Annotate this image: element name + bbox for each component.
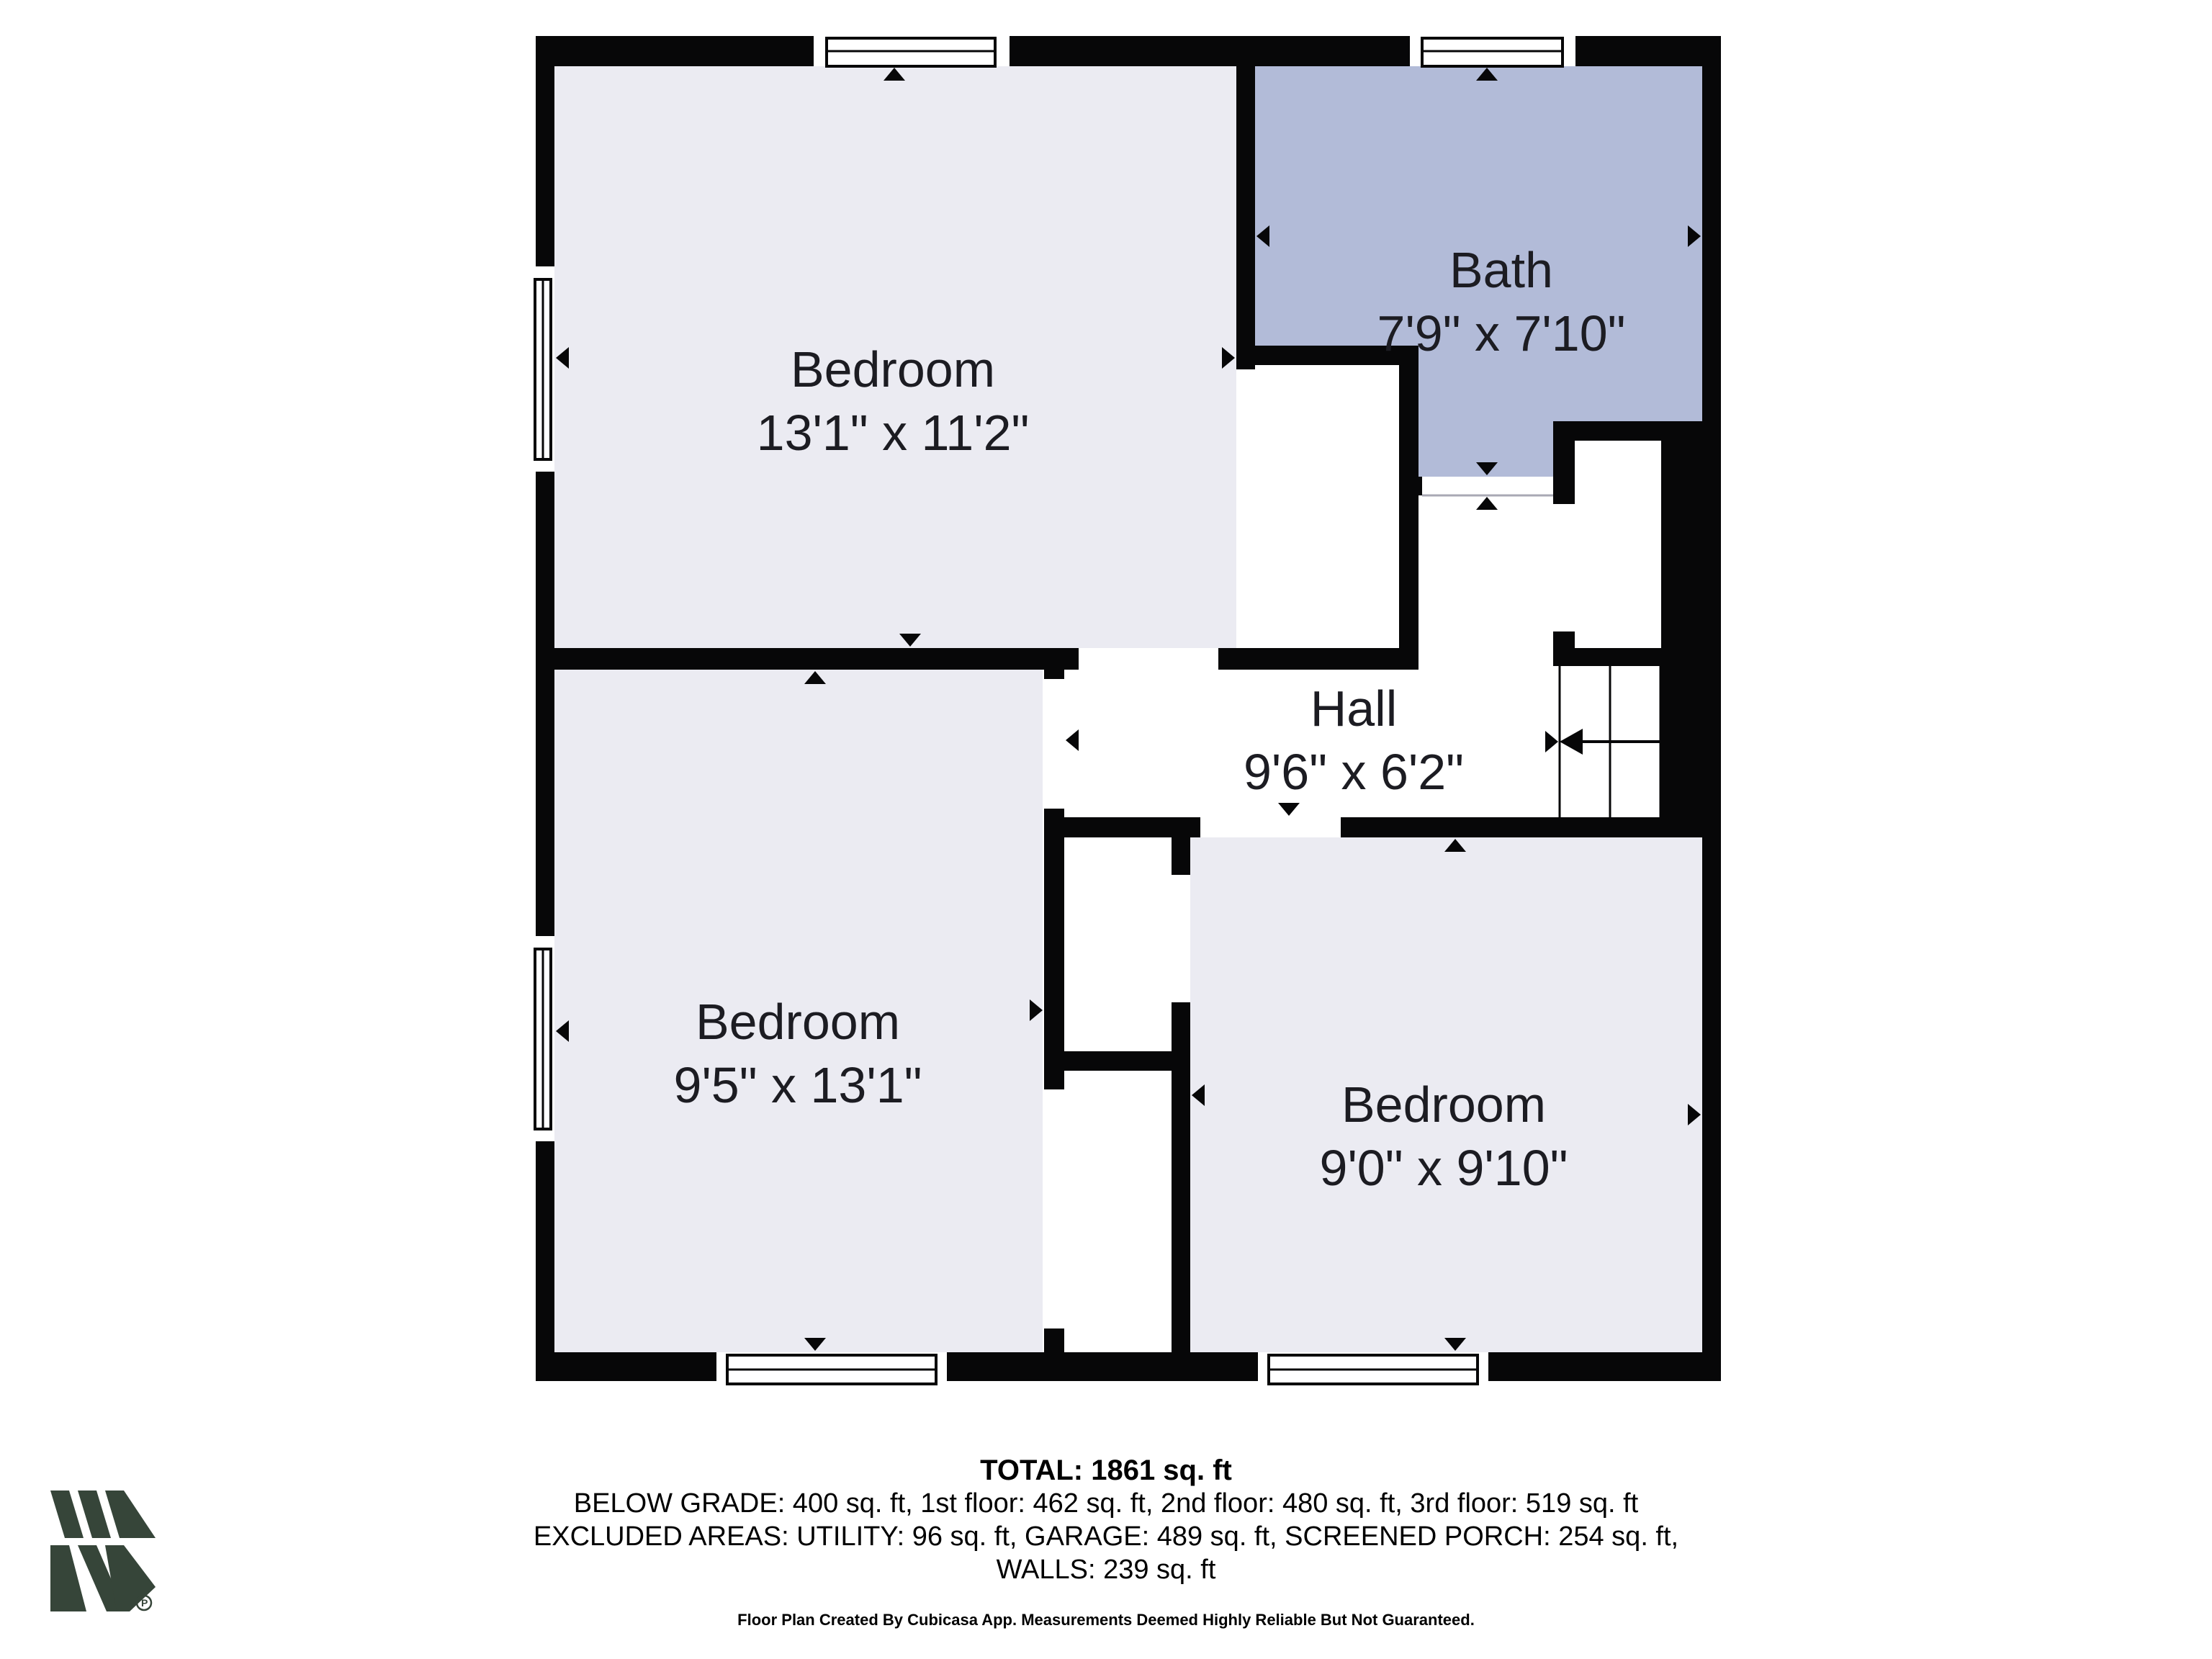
- wall-hall-left-upper: [1044, 648, 1064, 679]
- hall-down-arrow-icon: [1278, 803, 1300, 816]
- wall-outer-bottom: [536, 1352, 1721, 1381]
- bath-label: Bath 7'9" x 7'10": [1377, 238, 1626, 365]
- wall-outer-right: [1702, 36, 1721, 1381]
- mw-logo: P: [50, 1491, 158, 1613]
- bath-dims: 7'9" x 7'10": [1377, 302, 1626, 365]
- wall-bedroom1-right: [1236, 66, 1255, 369]
- landing-up-arrow-icon: [1476, 497, 1498, 510]
- wall-hall-bottom-right: [1341, 817, 1702, 837]
- window-top-left: [814, 36, 1010, 66]
- bedroom-2-dims: 9'5" x 13'1": [674, 1053, 922, 1117]
- bedroom-3-label: Bedroom 9'0" x 9'10": [1320, 1073, 1568, 1200]
- wall-mid-horizontal-right: [1218, 648, 1419, 670]
- wall-closetA-bottom: [1044, 1051, 1190, 1071]
- wall-closetB-right: [1172, 1071, 1190, 1352]
- wall-closet1-right: [1399, 365, 1419, 670]
- wall-right-thick-stair-bay: [1661, 441, 1702, 817]
- bedroom-1-label: Bedroom 13'1" x 11'2": [757, 338, 1030, 464]
- bedroom-2-name: Bedroom: [674, 990, 922, 1053]
- window-left-upper: [535, 266, 554, 472]
- wall-bath-closet-left-stub: [1553, 631, 1575, 648]
- staircase: [1560, 666, 1660, 817]
- wall-hall-left-stub: [1044, 1328, 1064, 1352]
- floor-plan-page: Bedroom 13'1" x 11'2" Bath 7'9" x 7'10" …: [0, 0, 2212, 1659]
- hall-label: Hall 9'6" x 6'2": [1244, 677, 1464, 804]
- wall-closetA-right-upper: [1172, 817, 1190, 875]
- wall-bath-door-stub: [1415, 477, 1422, 495]
- stair-direction-arrow-icon: [1560, 729, 1583, 755]
- bedroom-3-name: Bedroom: [1320, 1073, 1568, 1136]
- bath-name: Bath: [1377, 238, 1626, 302]
- hall-left-arrow-icon: [1066, 729, 1079, 751]
- total-area-text: TOTAL: 1861 sq. ft: [0, 1454, 2212, 1487]
- floor-areas-text: BELOW GRADE: 400 sq. ft, 1st floor: 462 …: [0, 1487, 2212, 1520]
- walls-area-text: WALLS: 239 sq. ft: [0, 1553, 2212, 1586]
- hall-right-arrow-icon: [1545, 731, 1558, 752]
- bedroom-3-dims: 9'0" x 9'10": [1320, 1136, 1568, 1200]
- wall-outer-left: [536, 36, 554, 1381]
- wall-closetA-right-lower: [1172, 1002, 1190, 1051]
- disclaimer-text: Floor Plan Created By Cubicasa App. Meas…: [0, 1611, 2212, 1629]
- bedroom-1-dims: 13'1" x 11'2": [757, 401, 1030, 464]
- logo-trademark-letter: P: [141, 1597, 148, 1609]
- wall-hall-left-lower: [1044, 809, 1064, 1089]
- window-left-lower: [535, 936, 554, 1141]
- hall-name: Hall: [1244, 677, 1464, 740]
- hall-dims: 9'6" x 6'2": [1244, 740, 1464, 804]
- bedroom-2-label: Bedroom 9'5" x 13'1": [674, 990, 922, 1117]
- wall-stair-closet-top: [1553, 421, 1702, 441]
- bedroom-1-name: Bedroom: [757, 338, 1030, 401]
- wall-mid-horizontal-left: [536, 648, 1079, 670]
- excluded-areas-text: EXCLUDED AREAS: UTILITY: 96 sq. ft, GARA…: [0, 1520, 2212, 1553]
- area-summary: TOTAL: 1861 sq. ft BELOW GRADE: 400 sq. …: [0, 1454, 2212, 1629]
- window-bottom-left: [716, 1352, 947, 1384]
- floor-plan-drawing: [0, 0, 2212, 1659]
- window-bottom-right: [1258, 1352, 1488, 1384]
- mw-logo-mark-icon: [50, 1491, 156, 1611]
- window-top-right: [1410, 36, 1575, 66]
